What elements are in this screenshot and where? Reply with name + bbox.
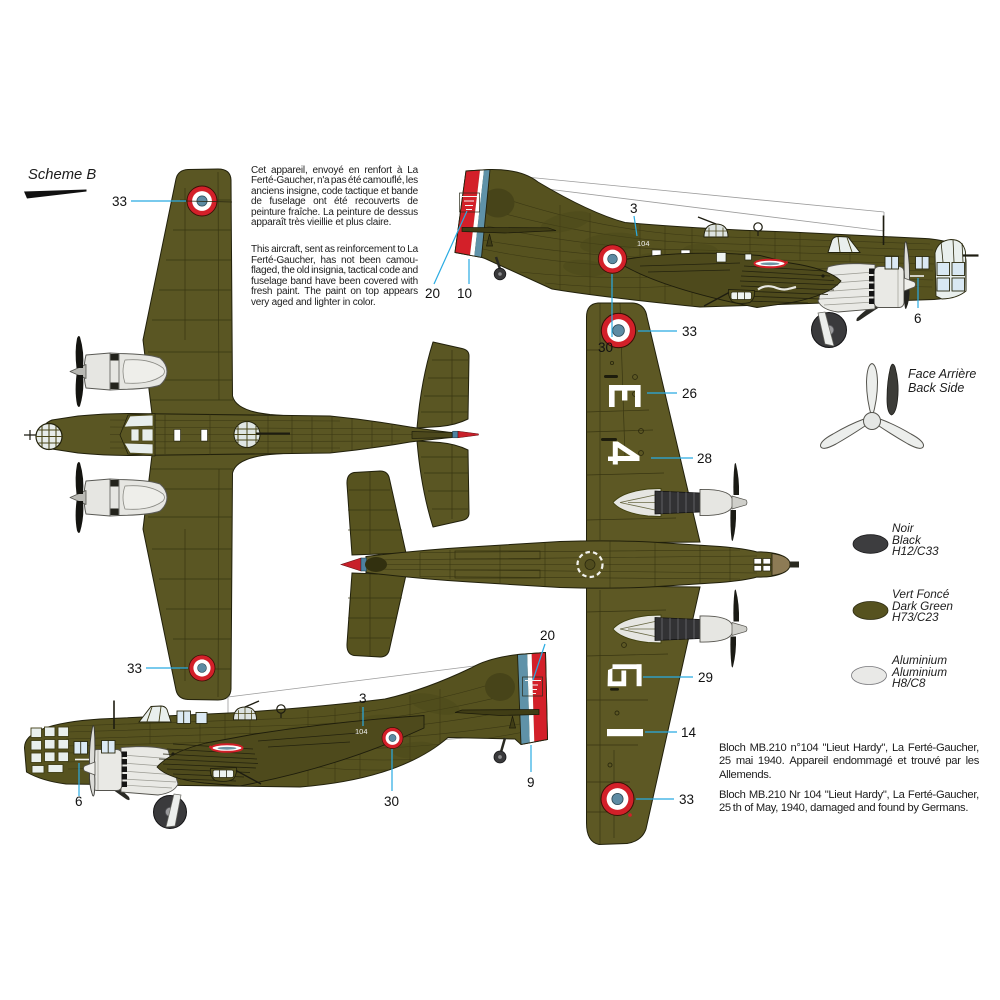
svg-text:28: 28 [697,451,712,466]
svg-text:33: 33 [127,661,142,676]
svg-text:10: 10 [457,286,472,301]
svg-text:6: 6 [75,794,83,809]
svg-text:6: 6 [914,311,922,326]
svg-text:26: 26 [682,386,697,401]
svg-text:29: 29 [698,670,713,685]
svg-text:20: 20 [425,286,440,301]
svg-text:14: 14 [681,725,697,740]
svg-text:3: 3 [359,691,367,706]
svg-text:9: 9 [527,775,535,790]
svg-text:33: 33 [679,792,694,807]
svg-text:33: 33 [112,194,127,209]
svg-text:104: 104 [637,239,650,248]
svg-text:20: 20 [540,628,555,643]
svg-text:30: 30 [384,794,399,809]
svg-text:30: 30 [598,340,613,355]
svg-text:33: 33 [682,324,697,339]
svg-text:3: 3 [630,201,638,216]
svg-text:104: 104 [355,727,368,736]
